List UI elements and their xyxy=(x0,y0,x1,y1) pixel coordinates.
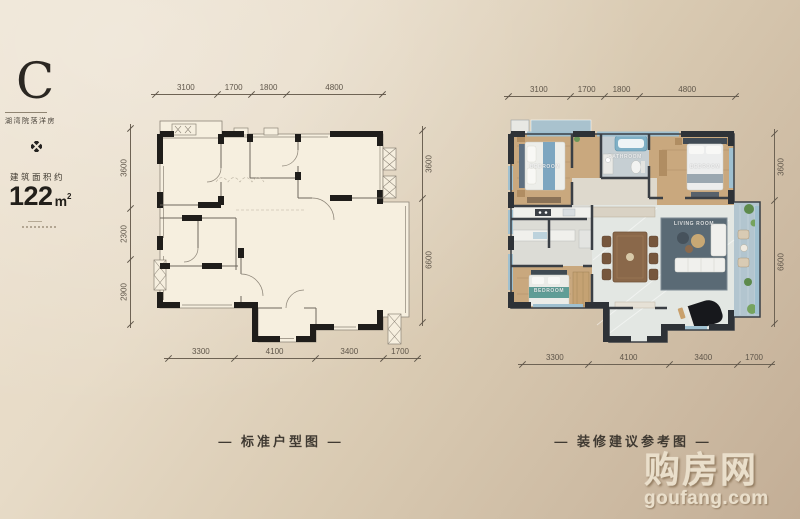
watermark-brand: 购房网 xyxy=(644,452,769,488)
dim-value: 1700 xyxy=(578,85,596,94)
unit-type-letter: C xyxy=(16,56,54,106)
area-number: 122 xyxy=(9,183,53,210)
floorplan-sheet: C 湖湾院落洋房 建筑面积约 122 m 2 3100170018004800 … xyxy=(0,0,800,519)
standard-plan-dims-top: 3100170018004800 xyxy=(155,82,382,98)
dim-value: 3100 xyxy=(177,83,195,92)
dim-value: 3600 xyxy=(120,150,129,186)
room-label-living-room: LIVING ROOM xyxy=(674,221,714,227)
room-label-bedroom-bl: BEDROOM xyxy=(534,288,564,294)
room-label-bedroom-tr: BEDROOM xyxy=(690,164,720,170)
dim-value: 4800 xyxy=(325,83,343,92)
room-label-bedroom-tl: BEDROOM xyxy=(530,164,560,170)
standard-floorplan-drawing xyxy=(146,110,426,360)
room-label-bathroom: BATHROOM xyxy=(608,154,642,160)
furnished-plan-dims-top: 3100170018004800 xyxy=(508,84,735,100)
dim-value: 4800 xyxy=(678,85,696,94)
dim-value: 1700 xyxy=(225,83,243,92)
dim-value: 3600 xyxy=(777,149,786,185)
fine-print-decoration xyxy=(22,226,56,228)
furnished-room-labels: BEDROOM BATHROOM BEDROOM BEDROOM LIVING … xyxy=(497,110,777,360)
unit-subtitle: 湖湾院落洋房 xyxy=(5,116,75,126)
dim-value: 1800 xyxy=(260,83,278,92)
area-unit: m xyxy=(55,192,67,210)
dim-value: 2900 xyxy=(120,274,129,310)
dim-value: 2300 xyxy=(120,216,129,252)
area-value: 122 m 2 xyxy=(9,183,71,210)
divider-line xyxy=(5,112,47,113)
fine-print-decoration xyxy=(28,221,42,222)
diamond-ornament-icon xyxy=(31,141,42,152)
standard-plan-dims-left: 360023002900 xyxy=(122,128,138,324)
dim-value: 1800 xyxy=(613,85,631,94)
dim-value: 6600 xyxy=(777,244,786,280)
area-exponent: 2 xyxy=(67,193,71,201)
dim-value: 3100 xyxy=(530,85,548,94)
watermark-domain: goufang.com xyxy=(644,489,769,508)
standard-plan-caption: — 标准户型图 — xyxy=(218,431,343,450)
furnished-plan-caption: — 装修建议参考图 — xyxy=(554,431,711,450)
watermark: 购房网 goufang.com xyxy=(644,452,769,508)
